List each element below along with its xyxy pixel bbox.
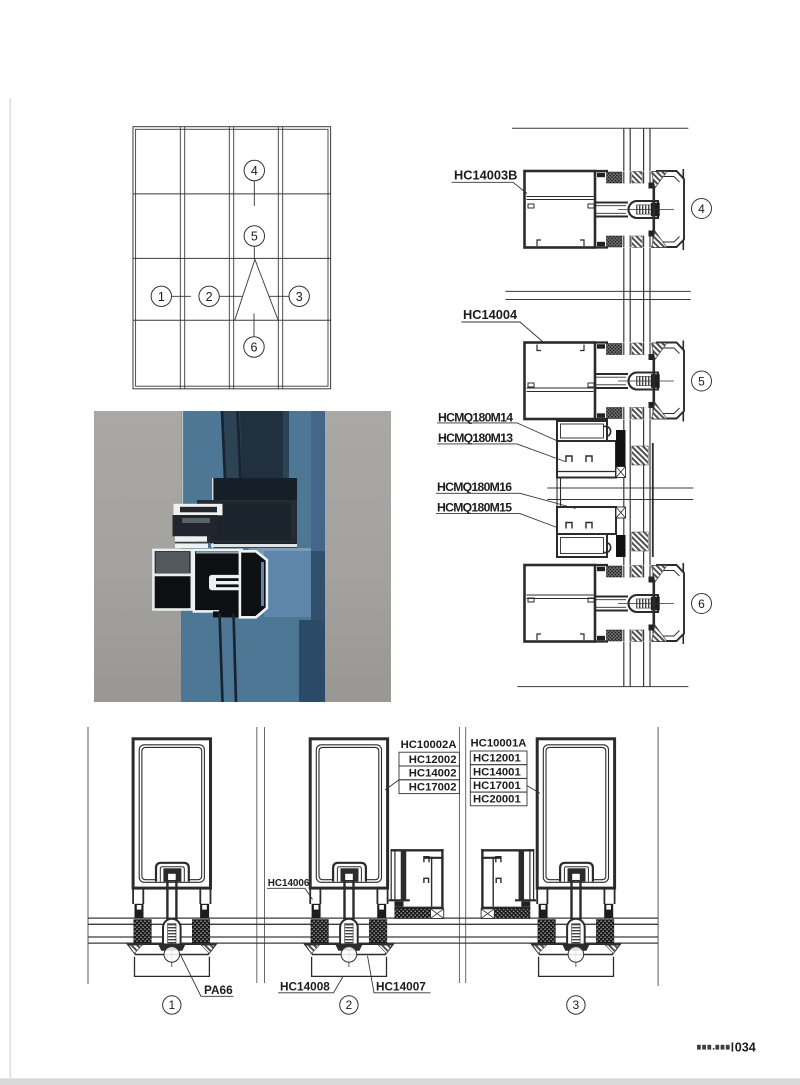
svg-text:HC17002: HC17002 [409,781,457,793]
svg-text:1: 1 [158,290,165,304]
svg-text:2: 2 [346,998,353,1012]
svg-text:2: 2 [206,290,213,304]
svg-text:HC14002: HC14002 [409,768,457,780]
svg-text:HC14003B: HC14003B [454,168,517,183]
svg-text:4: 4 [251,164,258,178]
svg-text:6: 6 [698,597,705,611]
svg-text:HC10001A: HC10001A [471,737,527,749]
svg-text:HCMQ180M13: HCMQ180M13 [438,431,513,445]
svg-text:034: 034 [735,1040,756,1054]
svg-text:5: 5 [698,374,705,388]
svg-text:HCMQ180M16: HCMQ180M16 [437,480,512,494]
svg-text:HC10002A: HC10002A [401,739,457,751]
svg-text:PA66: PA66 [204,983,233,997]
svg-text:HC14004: HC14004 [463,307,518,322]
svg-text:HC17001: HC17001 [473,780,521,792]
svg-text:5: 5 [251,230,258,244]
svg-text:HC14006: HC14006 [268,878,310,889]
svg-text:4: 4 [698,202,705,216]
svg-text:HCMQ180M15: HCMQ180M15 [437,500,512,514]
svg-text:HC14007: HC14007 [376,979,426,993]
svg-text:HC12001: HC12001 [473,753,521,765]
svg-text:1: 1 [168,998,175,1012]
svg-text:3: 3 [573,998,580,1012]
svg-text:HC14008: HC14008 [280,979,330,993]
svg-text:3: 3 [296,290,303,304]
svg-text:HC20001: HC20001 [473,794,521,806]
svg-text:HC12002: HC12002 [409,754,457,766]
svg-text:HC14001: HC14001 [473,766,521,778]
svg-text:HCMQ180M14: HCMQ180M14 [438,411,513,425]
svg-text:6: 6 [251,341,258,355]
